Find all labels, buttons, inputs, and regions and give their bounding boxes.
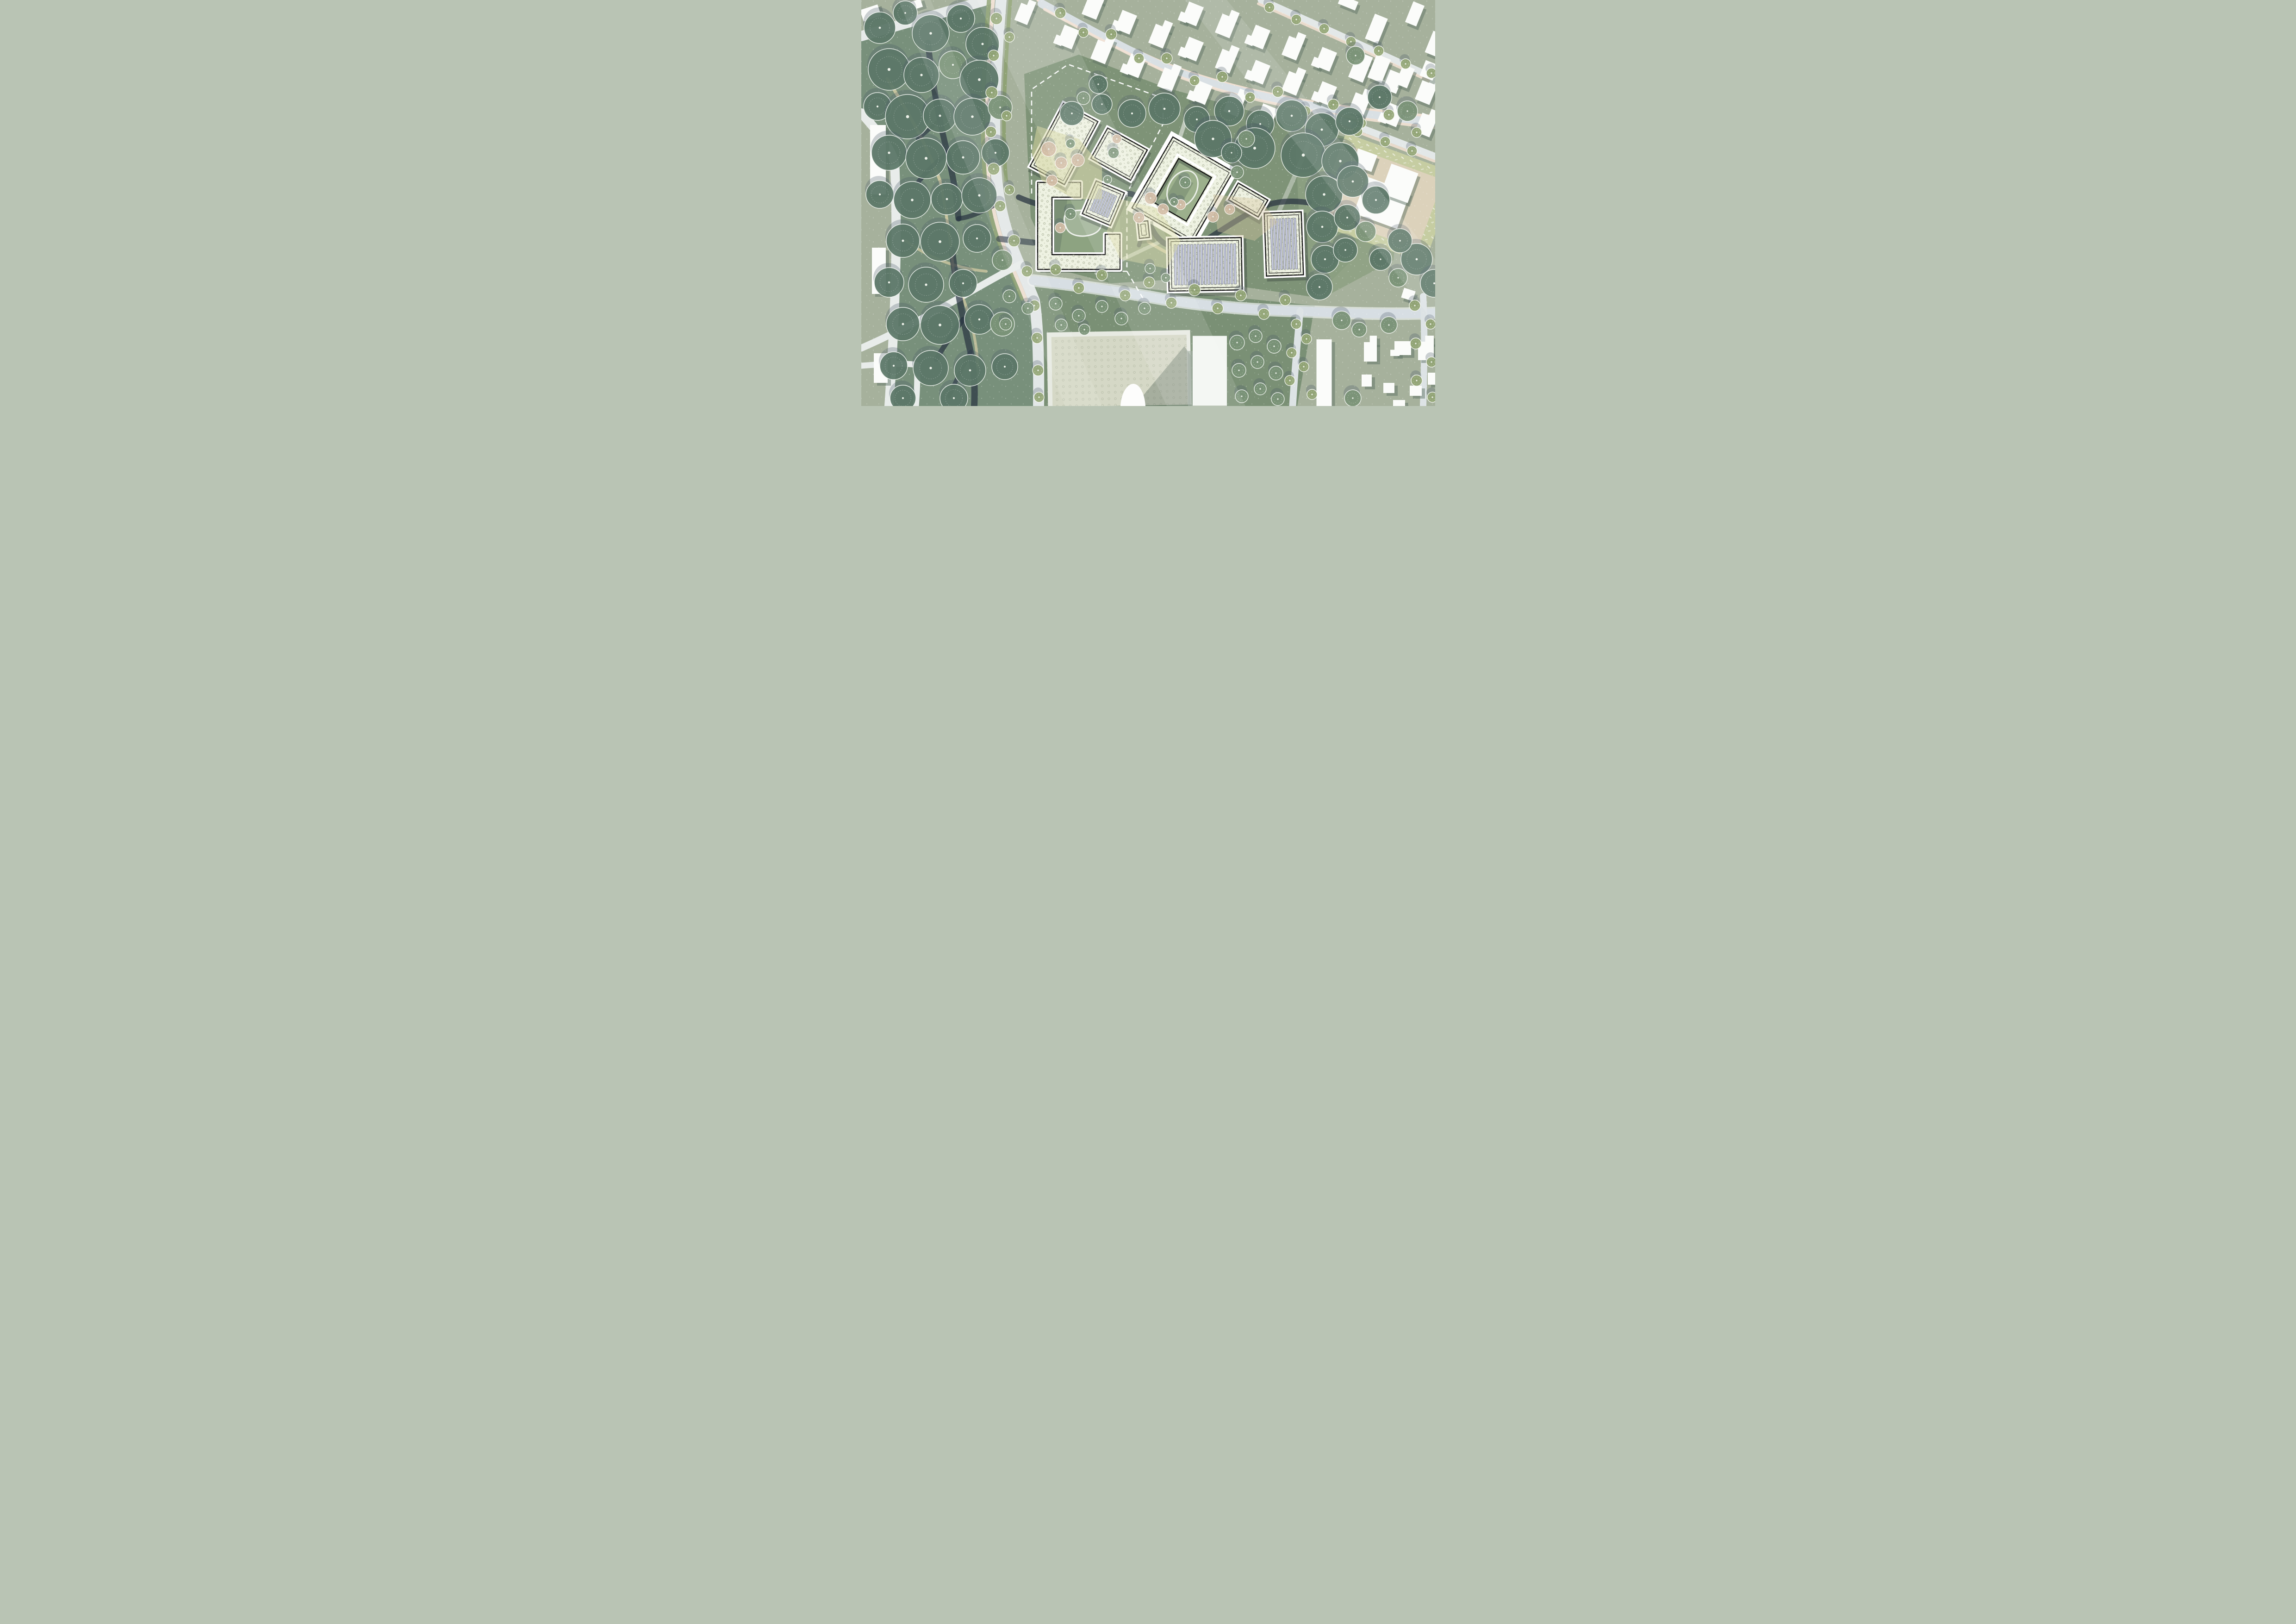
plan-layers: [861, 0, 1435, 406]
tree: [920, 218, 959, 261]
tree: [1306, 206, 1338, 243]
tree: [893, 177, 931, 219]
tree: [1332, 233, 1357, 262]
tree: [908, 262, 944, 302]
tree: [879, 347, 908, 380]
tree: [905, 133, 946, 179]
tree: [863, 7, 896, 44]
tree: [1425, 63, 1435, 78]
house: [1316, 339, 1335, 406]
tree: [1367, 81, 1392, 109]
tree: [1117, 95, 1146, 127]
tree: [912, 346, 948, 386]
tree: [930, 179, 963, 215]
tree: [1263, 0, 1275, 12]
tree: [962, 220, 991, 252]
tree: [885, 219, 920, 257]
tree: [871, 131, 907, 170]
tree: [885, 303, 920, 341]
site-plan-canvas: [861, 0, 1435, 406]
tree: [991, 349, 1018, 380]
tree: [964, 300, 994, 334]
tree: [1425, 352, 1435, 367]
tree: [1335, 103, 1363, 135]
tree: [1148, 88, 1180, 125]
tree: [1306, 269, 1332, 300]
tree: [865, 176, 894, 208]
tree: [948, 265, 977, 297]
tree: [920, 301, 959, 344]
masterplan-image: [861, 0, 1435, 406]
tree: [873, 263, 904, 297]
